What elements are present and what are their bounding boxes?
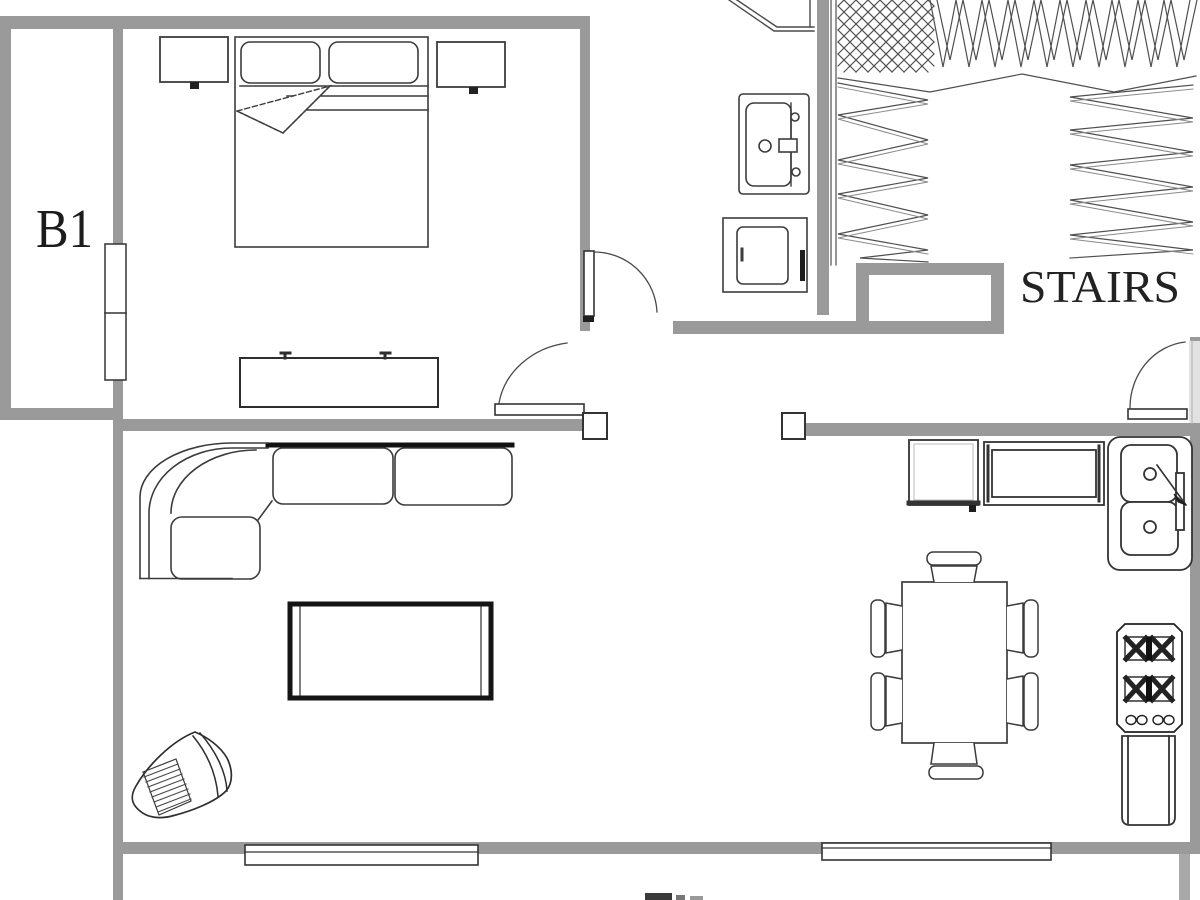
svg-text:B1: B1 — [36, 198, 93, 259]
svg-text:STAIRS: STAIRS — [1020, 261, 1180, 312]
